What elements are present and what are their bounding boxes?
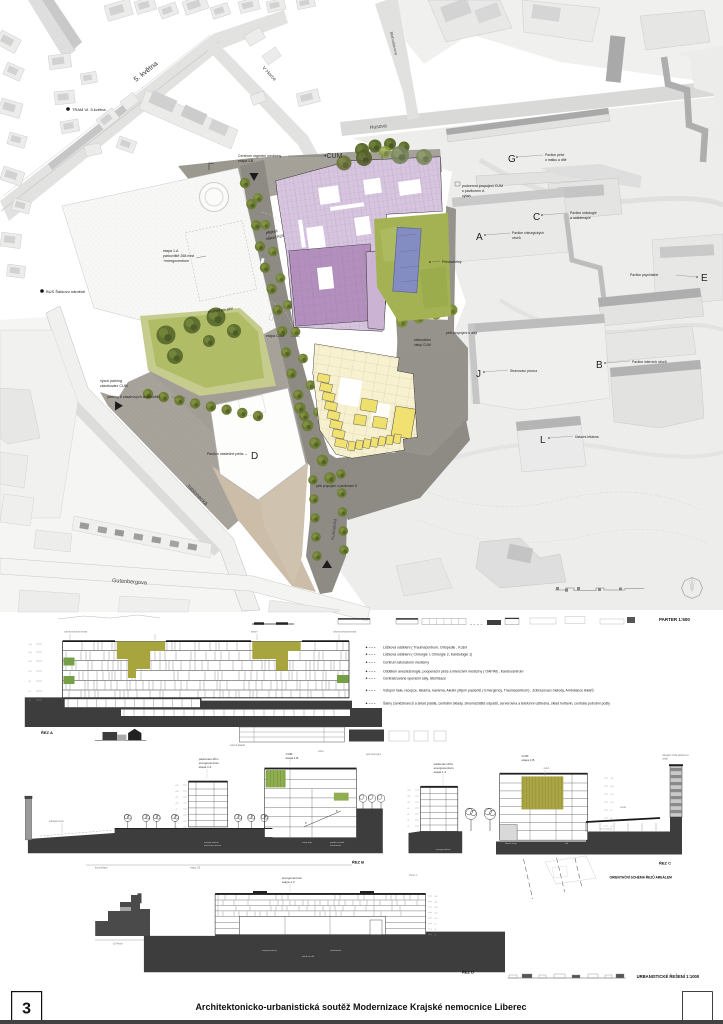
svg-text:energocentrum: energocentrum (436, 848, 451, 851)
svg-text:hlavní vstup: hlavní vstup (505, 842, 517, 845)
svg-text:vstup: vstup (318, 750, 324, 753)
svg-text:Parter 1: Parter 1 (409, 874, 418, 877)
svg-text:zásobování CUM: zásobování CUM (100, 384, 128, 388)
svg-text:TRAM Ul. 5.května: TRAM Ul. 5.května (72, 107, 106, 112)
svg-text:ORIENTAČNÍ SCHÉMA ŘEZŮ AREÁLEM: ORIENTAČNÍ SCHÉMA ŘEZŮ AREÁLEM (610, 875, 673, 880)
svg-text:PARTER 1:500: PARTER 1:500 (659, 617, 690, 622)
svg-text:vykonzolovaná terasa: vykonzolovaná terasa (333, 631, 357, 634)
svg-text:oborů: oborů (512, 236, 521, 240)
svg-text:etapa 1.4: etapa 1.4 (282, 880, 295, 884)
svg-text:ŘEZ C: ŘEZ C (659, 861, 671, 866)
svg-text:P: P (336, 809, 338, 813)
svg-text:ŘEZ A: ŘEZ A (41, 730, 53, 735)
svg-text:parkoviště 268 míst: parkoviště 268 míst (163, 254, 194, 258)
svg-text:sekundární: sekundární (414, 338, 431, 342)
svg-text:etapa 1.B: etapa 1.B (190, 867, 201, 870)
svg-text:P: P (305, 821, 307, 825)
svg-text:URBANISTICKÉ ŘEŠENÍ 1:1000: URBANISTICKÉ ŘEŠENÍ 1:1000 (637, 974, 700, 979)
svg-text:Pavilon interních oborů: Pavilon interních oborů (632, 360, 667, 364)
svg-text:•CUM: •CUM (324, 153, 343, 160)
svg-text:etapa 1.B: etapa 1.B (522, 758, 535, 762)
svg-text:zásobování: zásobování (330, 950, 342, 952)
svg-text:G: G (508, 154, 516, 165)
svg-text:etapa CUM: etapa CUM (266, 334, 284, 338)
svg-text:etapa 1.4: etapa 1.4 (199, 765, 212, 769)
svg-text:L: L (540, 435, 546, 446)
svg-text:výcuč parking: výcuč parking (100, 379, 122, 383)
svg-text:energocentrum: energocentrum (262, 949, 277, 952)
svg-text:pěší propojení: pěší propojení (366, 753, 381, 756)
svg-text:BUS Šaldovo náměstí: BUS Šaldovo náměstí (46, 289, 86, 294)
svg-text:Šatny zaměstnanců a sklad prád: Šatny zaměstnanců a sklad prádla, centrá… (383, 701, 610, 706)
svg-text:ŘEZ B: ŘEZ B (352, 860, 364, 865)
svg-text:Pavilon psychiatrie: Pavilon psychiatrie (630, 273, 658, 277)
svg-text:Přestavitelný: Přestavitelný (442, 260, 462, 264)
svg-text:pod úrovní terénu: pod úrovní terénu (204, 844, 222, 847)
svg-text:B: B (596, 360, 603, 371)
svg-text:zeleň: zeleň (544, 767, 550, 770)
svg-text:C: C (533, 212, 540, 223)
svg-text:sklad za uhlí: sklad za uhlí (302, 956, 315, 958)
svg-text:Centralizované operační sály,: Centralizované operační sály, Sterilizac… (383, 677, 446, 681)
svg-text:Ústavní lékárna: Ústavní lékárna (575, 434, 599, 439)
svg-text:a radioterapie: a radioterapie (570, 216, 591, 220)
svg-text:Lůžková oddělení ( Traumacent: Lůžková oddělení ( Traumacentrum, Ortope… (383, 646, 467, 650)
svg-text:pěší propojení s pavilonem D: pěší propojení s pavilonem D (316, 484, 358, 488)
svg-text:vstup CUM: vstup CUM (414, 343, 431, 347)
svg-text:parking 8 zásahových automobil: parking 8 zásahových automobilů (107, 395, 160, 399)
svg-text:Pavilon následné péče: Pavilon následné péče (207, 452, 243, 456)
svg-text:3: 3 (22, 1001, 31, 1018)
svg-text:energocentrum: energocentrum (204, 841, 219, 844)
svg-text:Vstupní hala, recepce, lékárna: Vstupní hala, recepce, lékárna, kavárna,… (383, 689, 594, 693)
svg-text:stávající terén: stávající terén (49, 820, 65, 823)
svg-text:Centrum laboratorní medicíny: Centrum laboratorní medicíny (383, 661, 429, 665)
svg-text:D: D (251, 451, 258, 462)
svg-text:výtah: výtah (462, 194, 471, 198)
svg-text:Pavilon péče: Pavilon péče (545, 153, 565, 157)
svg-text:s pavilonem A: s pavilonem A (462, 189, 485, 193)
svg-text:podzemní propojení CUM: podzemní propojení CUM (462, 184, 503, 188)
svg-text:zásobování: zásobování (330, 845, 342, 847)
svg-text:A: A (476, 232, 483, 243)
svg-text:výtah: výtah (662, 758, 668, 761)
svg-text:pěší propojení s alejí: pěší propojení s alejí (446, 331, 477, 335)
svg-text:etapa 1.B: etapa 1.B (238, 159, 254, 163)
svg-text:etapa 1.B: etapa 1.B (286, 756, 299, 760)
svg-text:atrium: atrium (251, 631, 258, 634)
svg-text:J: J (476, 369, 481, 380)
svg-text:ŘEZ D: ŘEZ D (462, 970, 474, 975)
svg-text:±0 Parter: ±0 Parter (113, 943, 123, 946)
svg-text:Pavilon chirurgických: Pavilon chirurgických (512, 231, 544, 235)
svg-text:etapa 1.4: etapa 1.4 (434, 770, 447, 774)
svg-text:Pavilon onkologie: Pavilon onkologie (570, 211, 597, 215)
svg-text:vykonzolovaná terasa: vykonzolovaná terasa (64, 631, 88, 634)
svg-text:cesta: cesta (620, 806, 626, 809)
svg-text:Stravovací provoz: Stravovací provoz (510, 369, 537, 373)
svg-text:etapa 1.A: etapa 1.A (163, 249, 179, 253)
svg-text:E: E (701, 273, 708, 284)
svg-text:garáže sanitek: garáže sanitek (330, 841, 345, 844)
svg-text:Lůžková oddělení ( Chirurgie: Lůžková oddělení ( Chirurgie I, Chirurgi… (383, 653, 472, 657)
svg-text:vstup hala: vstup hala (302, 841, 313, 844)
svg-text:zelená fasáda: zelená fasáda (230, 744, 246, 747)
svg-text:komunikace: komunikace (95, 867, 108, 870)
svg-text:Architektonicko-urbanistická s: Architektonicko-urbanistická soutěž Mode… (195, 1002, 526, 1012)
svg-text:Centrum urgentní medicíny: Centrum urgentní medicíny (238, 154, 282, 158)
svg-text:o matku a dítě: o matku a dítě (545, 158, 567, 162)
svg-text:Oddělení anesteziologie, poope: Oddělení anesteziologie, pooperační péče… (383, 670, 524, 674)
svg-text:+energocentrum: +energocentrum (163, 259, 189, 263)
